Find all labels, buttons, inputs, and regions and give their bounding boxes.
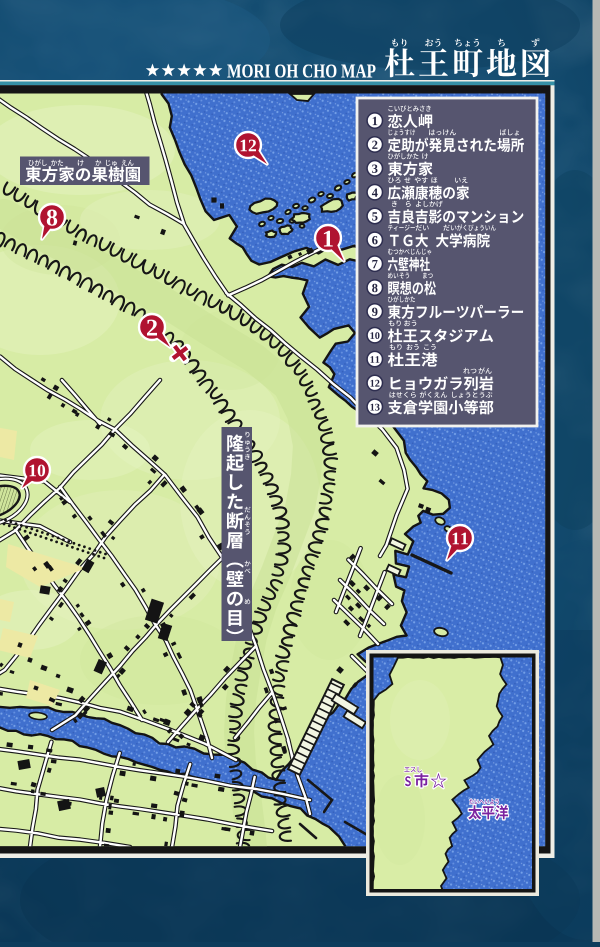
svg-text:MORI OH CHO MAP: MORI OH CHO MAP — [227, 62, 376, 83]
